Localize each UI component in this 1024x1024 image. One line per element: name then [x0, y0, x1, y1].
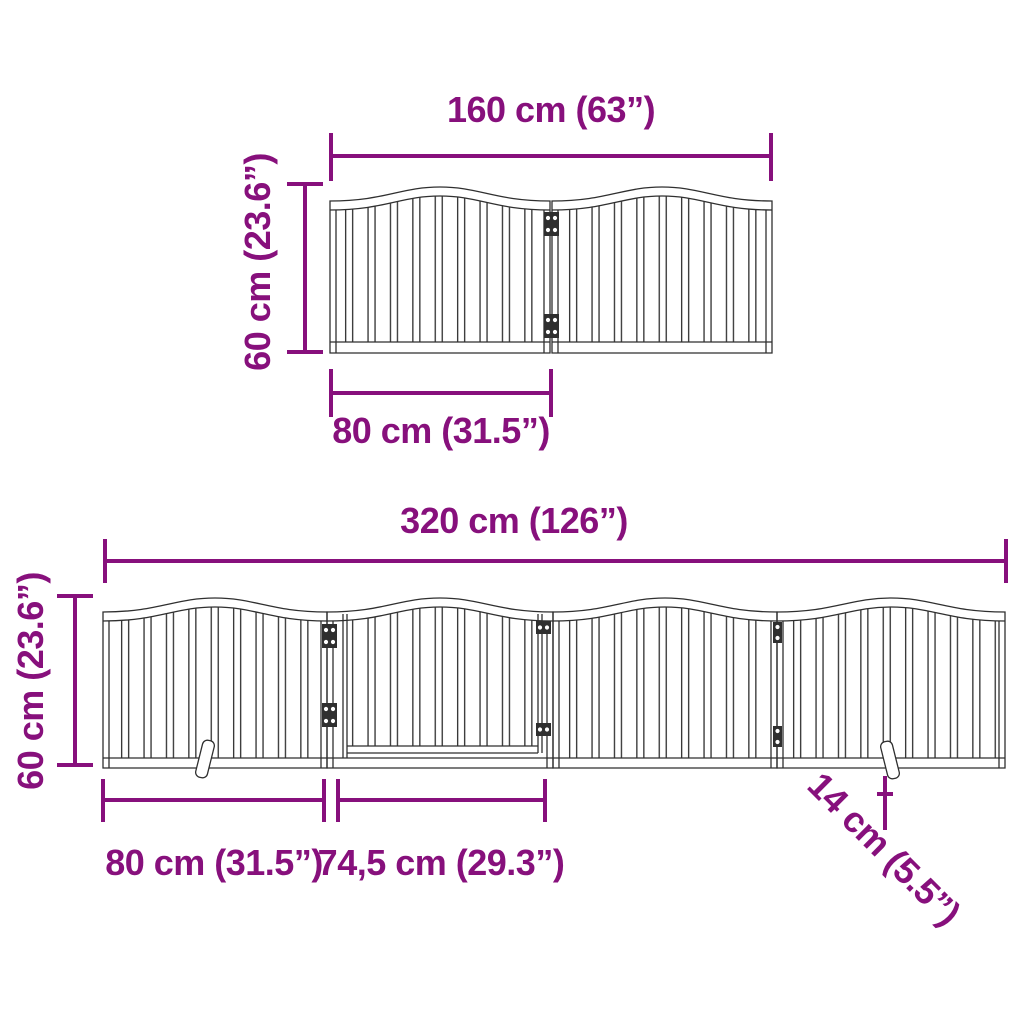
top-gate-width-dimension-line [331, 133, 771, 181]
gate-panel [330, 187, 550, 353]
bottom-gate-height-dimension-line [57, 596, 93, 765]
bottom-gate-panel-width-label: 80 cm (31.5”) [105, 845, 323, 881]
gate-panel [103, 598, 327, 768]
top-gate-drawing [330, 187, 772, 353]
bottom-gate-door-width-dimension-line [338, 779, 545, 822]
top-gate-height-dimension-line [287, 184, 323, 352]
hinge-hardware-icon [544, 212, 559, 236]
hinge-hardware-icon [322, 624, 337, 648]
top-gate-height-label: 60 cm (23.6”) [240, 153, 276, 371]
top-gate-width-label: 160 cm (63”) [447, 92, 655, 128]
gate-panel [552, 187, 772, 353]
latch-hardware-icon [536, 723, 551, 736]
gate-panel [553, 598, 777, 768]
hinge-hardware-icon [322, 703, 337, 727]
bottom-gate-panel-width-dimension-line [103, 779, 324, 822]
pivot-hardware-icon [773, 622, 782, 643]
bottom-gate-drawing [103, 598, 1005, 780]
bottom-gate-width-dimension-line [105, 539, 1006, 583]
bottom-gate-door-width-label: 74,5 cm (29.3”) [318, 845, 565, 881]
hinge-hardware-icon [544, 314, 559, 338]
top-gate-panel-width-label: 80 cm (31.5”) [332, 413, 550, 449]
product-dimension-diagram: 160 cm (63”) 60 cm (23.6”) 80 cm (31.5”)… [0, 0, 1024, 1024]
latch-hardware-icon [536, 621, 551, 634]
bottom-gate-height-label: 60 cm (23.6”) [13, 572, 49, 790]
bottom-gate-width-label: 320 cm (126”) [400, 503, 628, 539]
gate-door-panel [327, 598, 553, 768]
pivot-hardware-icon [773, 726, 782, 747]
